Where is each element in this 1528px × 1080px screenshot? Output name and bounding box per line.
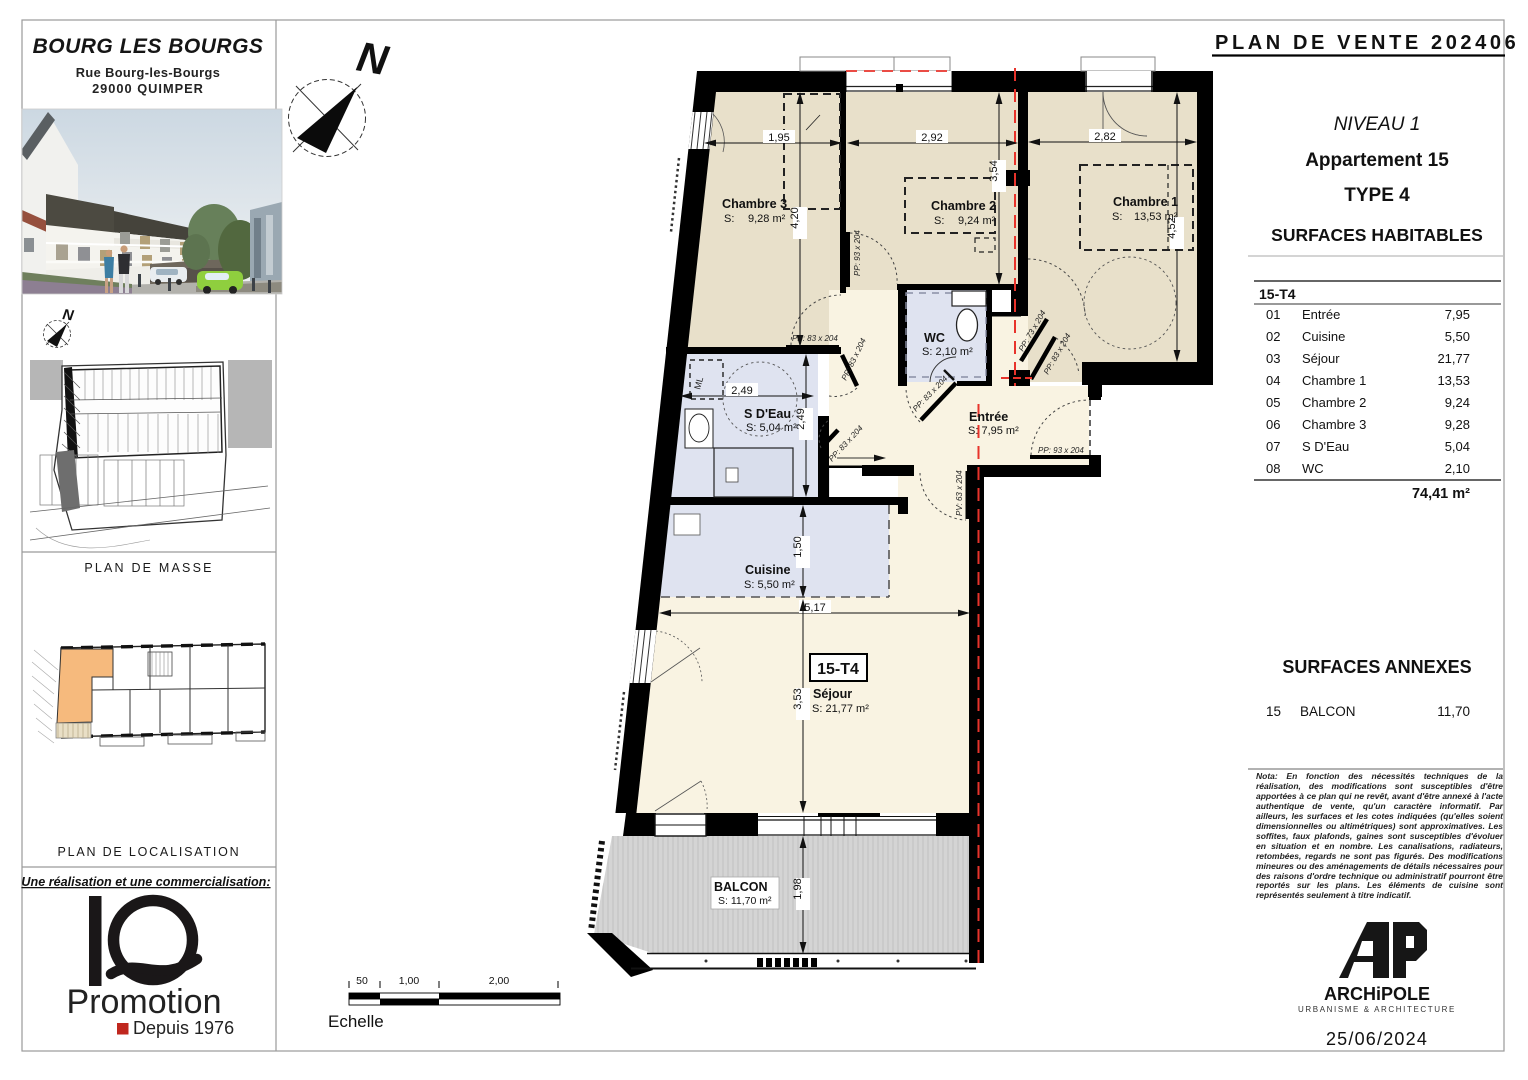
- svg-text:2,49: 2,49: [731, 385, 752, 397]
- svg-text:Promotion: Promotion: [67, 983, 222, 1021]
- svg-text:S:: S:: [724, 213, 734, 225]
- svg-text:4,20: 4,20: [789, 207, 801, 228]
- svg-text:Depuis 1976: Depuis 1976: [133, 1018, 234, 1038]
- svg-text:NIVEAU 1: NIVEAU 1: [1334, 114, 1421, 135]
- svg-text:Entrée: Entrée: [1302, 307, 1340, 322]
- svg-text:2,82: 2,82: [1094, 131, 1115, 143]
- svg-text:9,24 m²: 9,24 m²: [958, 215, 996, 227]
- svg-text:1,95: 1,95: [768, 132, 789, 144]
- svg-text:PP: 93 x 204: PP: 93 x 204: [1038, 446, 1084, 455]
- svg-text:1,98: 1,98: [792, 878, 804, 899]
- svg-text:9,24: 9,24: [1445, 395, 1470, 410]
- svg-text:15: 15: [1266, 704, 1281, 719]
- svg-text:2,92: 2,92: [921, 132, 942, 144]
- svg-text:2,49: 2,49: [795, 408, 807, 429]
- svg-text:Chambre 1: Chambre 1: [1302, 373, 1366, 388]
- svg-text:S: 21,77 m²: S: 21,77 m²: [812, 703, 869, 715]
- svg-text:Echelle: Echelle: [328, 1012, 384, 1031]
- svg-text:11,70: 11,70: [1437, 704, 1470, 719]
- svg-text:S:: S:: [1112, 211, 1122, 223]
- svg-text:74,41 m²: 74,41 m²: [1412, 486, 1470, 502]
- svg-text:50: 50: [356, 975, 368, 987]
- svg-text:07: 07: [1266, 439, 1280, 454]
- svg-text:Chambre 2: Chambre 2: [1302, 395, 1366, 410]
- svg-text:7,95: 7,95: [1445, 307, 1470, 322]
- svg-text:S: 2,10 m²: S: 2,10 m²: [922, 346, 973, 358]
- svg-text:5,50: 5,50: [1445, 329, 1470, 344]
- svg-text:Chambre 1: Chambre 1: [1113, 195, 1178, 209]
- svg-text:Séjour: Séjour: [1302, 351, 1340, 366]
- svg-text:Chambre 3: Chambre 3: [1302, 417, 1366, 432]
- svg-text:29000 QUIMPER: 29000 QUIMPER: [92, 81, 204, 96]
- svg-text:05: 05: [1266, 395, 1280, 410]
- svg-text:Cuisine: Cuisine: [1302, 329, 1345, 344]
- svg-text:25/06/2024: 25/06/2024: [1326, 1029, 1428, 1049]
- svg-text:S: 5,50 m²: S: 5,50 m²: [744, 579, 795, 591]
- svg-text:WC: WC: [1302, 461, 1324, 476]
- svg-text:Séjour: Séjour: [813, 687, 852, 701]
- svg-text:21,77: 21,77: [1437, 351, 1470, 366]
- svg-text:PLAN DE VENTE 202406: PLAN DE VENTE 202406: [1215, 32, 1519, 54]
- svg-text:Rue Bourg-les-Bourgs: Rue Bourg-les-Bourgs: [76, 65, 221, 80]
- svg-text:5,04: 5,04: [1445, 439, 1470, 454]
- svg-text:S D'Eau: S D'Eau: [744, 407, 791, 421]
- svg-text:1,00: 1,00: [399, 975, 420, 987]
- svg-text:PLAN DE LOCALISATION: PLAN DE LOCALISATION: [57, 845, 240, 859]
- svg-text:13,53 m²: 13,53 m²: [1134, 211, 1178, 223]
- svg-text:Chambre 3: Chambre 3: [722, 197, 787, 211]
- svg-text:S: 11,70 m²: S: 11,70 m²: [718, 895, 772, 907]
- svg-text:Appartement 15: Appartement 15: [1305, 150, 1449, 171]
- svg-text:PV: 63 x 204: PV: 63 x 204: [955, 470, 964, 516]
- svg-text:PP: 93 x 204: PP: 93 x 204: [853, 230, 862, 276]
- svg-text:TYPE 4: TYPE 4: [1344, 185, 1410, 206]
- svg-text:Entrée: Entrée: [969, 410, 1008, 424]
- svg-text:N: N: [61, 306, 75, 325]
- svg-text:S D'Eau: S D'Eau: [1302, 439, 1349, 454]
- svg-text:06: 06: [1266, 417, 1280, 432]
- svg-text:Une réalisation et une commerc: Une réalisation et une commercialisation…: [21, 875, 270, 889]
- svg-text:9,28: 9,28: [1445, 417, 1470, 432]
- svg-text:BALCON: BALCON: [714, 880, 767, 894]
- svg-text:9,28 m²: 9,28 m²: [748, 213, 786, 225]
- svg-text:01: 01: [1266, 307, 1280, 322]
- svg-text:SURFACES ANNEXES: SURFACES ANNEXES: [1282, 657, 1471, 677]
- svg-text:S: 5,04 m²: S: 5,04 m²: [746, 422, 797, 434]
- svg-text:5,17: 5,17: [804, 602, 825, 614]
- svg-text:S:: S:: [934, 215, 944, 227]
- svg-text:BALCON: BALCON: [1300, 704, 1356, 719]
- svg-text:02: 02: [1266, 329, 1280, 344]
- svg-text:SURFACES HABITABLES: SURFACES HABITABLES: [1271, 225, 1483, 245]
- svg-text:15-T4: 15-T4: [817, 661, 859, 678]
- svg-text:PP: 83 x 204: PP: 83 x 204: [792, 334, 838, 343]
- svg-text:ARCHiPOLE: ARCHiPOLE: [1324, 984, 1430, 1004]
- svg-text:13,53: 13,53: [1437, 373, 1470, 388]
- svg-text:04: 04: [1266, 373, 1280, 388]
- svg-text:URBANISME & ARCHITECTURE: URBANISME & ARCHITECTURE: [1298, 1005, 1456, 1014]
- svg-text:15-T4: 15-T4: [1259, 286, 1296, 302]
- svg-text:Cuisine: Cuisine: [745, 563, 791, 577]
- svg-text:N: N: [353, 33, 393, 85]
- svg-text:3,53: 3,53: [792, 688, 804, 709]
- svg-text:3,54: 3,54: [988, 160, 1000, 181]
- svg-text:Chambre 2: Chambre 2: [931, 199, 996, 213]
- svg-text:S: 7,95 m²: S: 7,95 m²: [968, 425, 1019, 437]
- svg-text:2,00: 2,00: [489, 975, 510, 987]
- svg-text:03: 03: [1266, 351, 1280, 366]
- svg-text:2,10: 2,10: [1445, 461, 1470, 476]
- svg-text:WC: WC: [924, 331, 945, 345]
- svg-text:1,50: 1,50: [792, 536, 804, 557]
- svg-text:BOURG LES BOURGS: BOURG LES BOURGS: [33, 35, 264, 58]
- svg-text:08: 08: [1266, 461, 1280, 476]
- svg-text:PLAN DE MASSE: PLAN DE MASSE: [84, 561, 213, 575]
